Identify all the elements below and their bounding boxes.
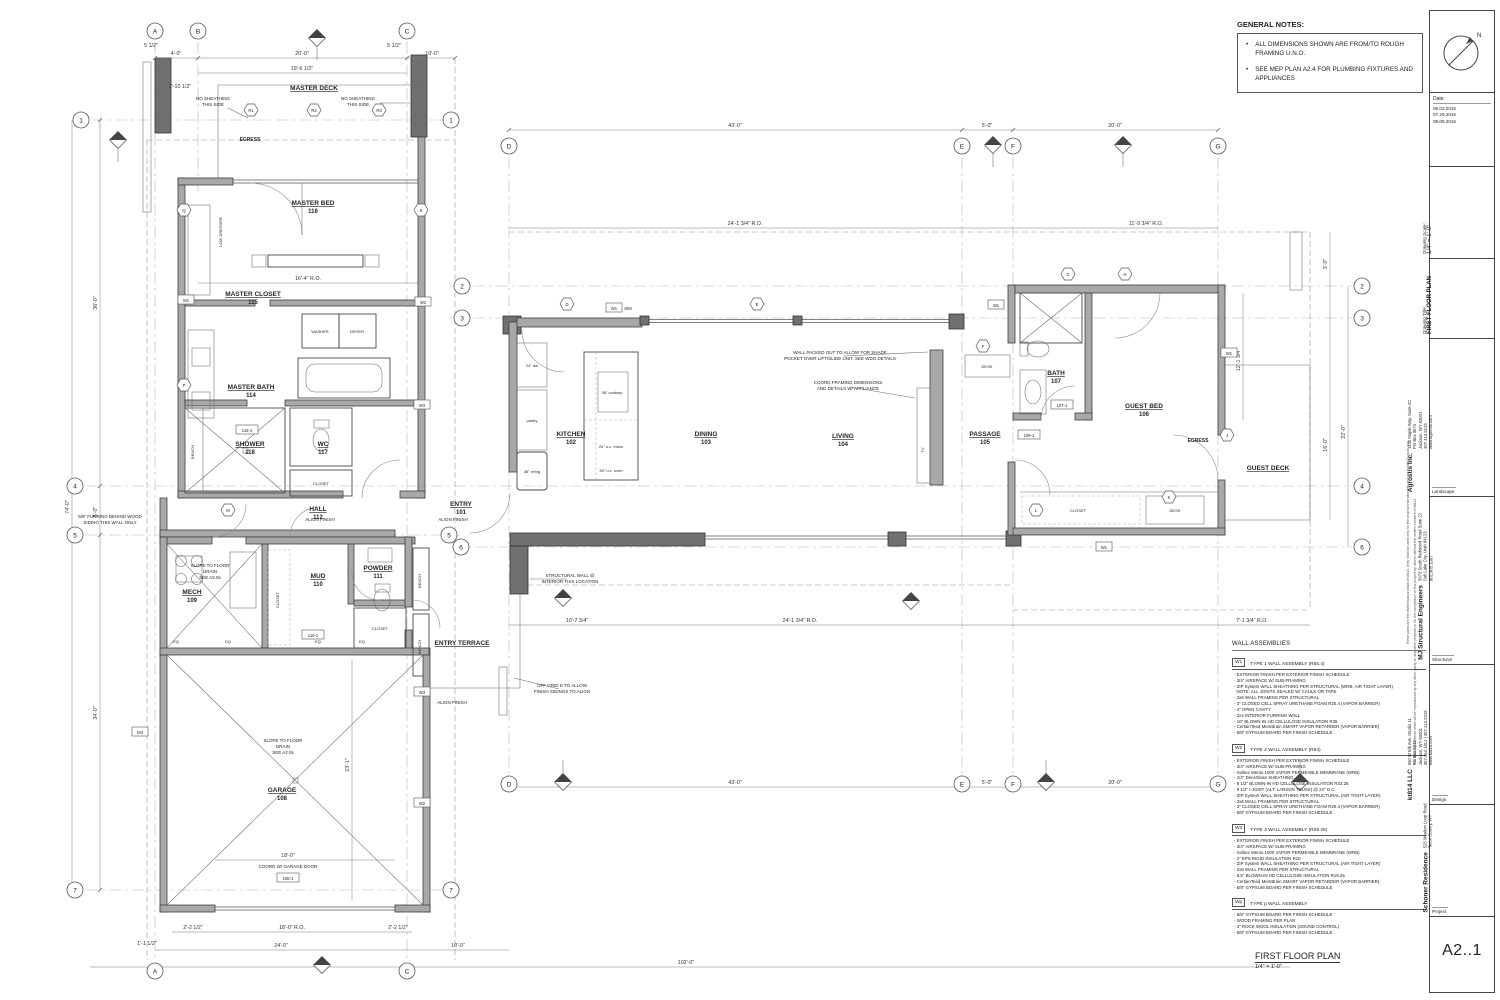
- wall-assembly-title: TYPE p WALL ASSEMBLY: [1250, 902, 1307, 907]
- room-label-kitchen: KITCHEN: [557, 431, 586, 438]
- wall-tag: W1: [611, 306, 618, 311]
- room-num: 102: [566, 440, 577, 446]
- grid-bubble-4: 4: [73, 483, 77, 490]
- grid-bubble-C: C: [405, 968, 410, 975]
- firm-role: Structural: [1432, 655, 1454, 662]
- guest-fixtures: [1020, 293, 1204, 524]
- room-label-mech: MECH: [182, 589, 201, 596]
- grid-bubbles-letters: A B C D E F G A C D E F G: [147, 23, 1226, 979]
- hex-D: D: [565, 302, 568, 307]
- dim-label: 22'-0": [1341, 425, 1347, 439]
- dim-label: 2'-2 1/2": [388, 925, 408, 931]
- firm-section-design: kt814 LLC 650 W Elk Ave, Studio 11PO Box…: [1430, 665, 1494, 805]
- hex-F: F: [982, 344, 985, 349]
- scale-section: Drawing Scale: 1/4" = 1'-0": [1430, 167, 1494, 259]
- title-block: N Date: 06.02.201507.29.201509.09.2015 D…: [1429, 10, 1495, 993]
- master-fixtures: [185, 205, 390, 496]
- room-label-master-bed: MASTER BED: [292, 200, 335, 207]
- dim-label: 34'-0": [93, 706, 99, 720]
- grid-bubble-1: 1: [79, 117, 83, 124]
- room-num: 118: [245, 450, 255, 456]
- note-slope-drain: SEE A2.0s: [272, 750, 294, 755]
- bench-label: BENCH: [417, 574, 422, 588]
- dw-label: 24" dw: [526, 363, 538, 368]
- grid-lines: [86, 42, 1352, 958]
- note-structural-wall: STRUCTURAL WALL @: [545, 573, 595, 578]
- note-slope-drain: SEE A2.0s: [199, 575, 221, 580]
- wall-tag: W1: [993, 303, 1000, 308]
- dim-label: 43'-0": [728, 123, 742, 129]
- wall-assembly-line: 5/8" GYPSUM BOARD PER FINISH SCHEDULE: [1234, 885, 1426, 891]
- wall-assemblies-list: W1 TYPE 1 WALL ASSEMBLY (R55.4) EXTERIOR…: [1232, 658, 1426, 936]
- wall-assembly-title: TYPE 3 WALL ASSEMBLY (R29.25): [1250, 828, 1327, 833]
- plan-title: FIRST FLOOR PLAN 1/4" = 1'-0": [1255, 951, 1340, 970]
- general-note-item: SEE MEP PLAN A2.4 FOR PLUMBING FIXTURES …: [1242, 66, 1416, 83]
- grid-bubble-5: 5: [73, 532, 77, 539]
- note-coord-framing: COORD FRAMING DIMENSIONS: [814, 380, 883, 385]
- room-label-bath: BATH: [1047, 370, 1065, 377]
- dim-label: 18'-0": [281, 853, 295, 859]
- closet-label: CLOSET: [313, 481, 330, 486]
- note-shade-pocket: WALL PACKED OUT TO ALLOW FOR SHADE: [793, 350, 887, 355]
- note-furring: 5/8" FURRING BEHIND WOOD: [78, 514, 142, 519]
- note-slope-drain: DRAIN: [203, 569, 217, 574]
- pantry-label: pantry: [526, 418, 537, 423]
- firm-section-structural: MJ Structural Engineers 5673 South Redwo…: [1430, 497, 1494, 665]
- dim-label: 1'-1 1/2": [137, 941, 157, 947]
- dim-label: 102'-0": [678, 960, 695, 966]
- note-no-sheathing: NO SHEATHING: [341, 96, 375, 101]
- note-align-finish: ALIGN FINISH: [437, 700, 467, 705]
- drawing-title-section: Drawing Title: FIRST FLOOR PLAN: [1430, 259, 1494, 339]
- dim-label: 24'-0": [274, 943, 288, 949]
- eq-label: EQ: [225, 639, 231, 644]
- dim-label: 36'-0": [93, 296, 99, 310]
- wall-assembly: W3 TYPE 3 WALL ASSEMBLY (R29.25) EXTERIO…: [1232, 824, 1426, 890]
- closet-label: CLOSET: [372, 626, 389, 631]
- hex-G: G: [1066, 272, 1069, 277]
- wall-assembly-line: 5/8" GYPSUM BOARD PER FINISH SCHEDULE: [1234, 810, 1426, 816]
- dim-label: 16'-0": [1323, 438, 1329, 452]
- general-notes-heading: GENERAL NOTES:: [1237, 20, 1423, 29]
- cooktop-label: 36" cooktop: [602, 390, 624, 395]
- firm-name: kt814 LLC: [1407, 769, 1414, 800]
- grid-bubble-3: 3: [460, 315, 464, 322]
- note-off-grid: FINISH SIDINGS TO ALIGN: [534, 689, 590, 694]
- wall-assembly-lines: EXTERIOR FINISH PER EXTERIOR FINISH SCHE…: [1234, 672, 1426, 736]
- wall-assembly-lines: EXTERIOR FINISH PER EXTERIOR FINISH SCHE…: [1234, 758, 1426, 816]
- wall-tag: W1: [183, 298, 190, 303]
- room-label-master-deck: MASTER DECK: [290, 85, 338, 92]
- room-label-powder: POWDER: [363, 565, 393, 572]
- room-label-master-bath: MASTER BATH: [228, 384, 275, 391]
- grid-bubble-3: 3: [1360, 315, 1364, 322]
- wall-tag: W2: [419, 801, 426, 806]
- dimension-lines: [72, 56, 1348, 967]
- room-num: 101: [456, 510, 467, 516]
- room-label-hall: HALL: [309, 506, 326, 513]
- room-label-guest-deck: GUEST DECK: [1247, 465, 1290, 472]
- grid-bubble-6: 6: [1360, 544, 1364, 551]
- date-list: 06.02.201507.29.201509.09.2015: [1433, 106, 1491, 125]
- wall-assembly-title-row: Wp TYPE p WALL ASSEMBLY: [1232, 898, 1426, 910]
- wall-assembly-line: 5/8" GYPSUM BOARD PER FINISH SCHEDULE: [1234, 930, 1426, 936]
- dim-label: 5'-0": [982, 123, 993, 129]
- wall-assembly-title-row: W1 TYPE 1 WALL ASSEMBLY (R55.4): [1232, 658, 1426, 670]
- note-align-finish: ALIGN FINISH: [305, 517, 335, 522]
- refrig-label: 36" refrig: [524, 469, 540, 474]
- room-num: 103: [701, 440, 712, 446]
- grid-bubble-C: C: [405, 28, 410, 35]
- project-name: Schoner Residence: [1423, 852, 1430, 912]
- hex-R1: R1: [248, 108, 254, 113]
- room-label-master-closet: MASTER CLOSET: [225, 291, 281, 298]
- note-slope-drain: SLOPE TO FLOOR: [190, 563, 230, 568]
- micro-label: 24" u.c. micro: [599, 444, 624, 449]
- dim-label: 18'-0" R.O.: [279, 925, 305, 931]
- oven-label: 30" u.c. oven: [599, 468, 622, 473]
- room-label-passage: PASSAGE: [969, 431, 1001, 438]
- note-align-finish: ALIGN FINISH: [438, 517, 468, 522]
- firm-role: Design: [1432, 795, 1448, 802]
- note-no-sheathing: THIS SIDE: [347, 102, 369, 107]
- wall-assembly: W2 TYPE 2 WALL ASSEMBLY (R54) EXTERIOR F…: [1232, 744, 1426, 816]
- grid-bubble-A: A: [153, 968, 158, 975]
- firm-name: MJ Structural Engineers: [1417, 585, 1424, 660]
- hex-K: K: [1168, 495, 1171, 500]
- door-tag: 108-1: [283, 876, 294, 881]
- desk-label: DESK: [982, 364, 993, 369]
- general-notes-box: ALL DIMENSIONS SHOWN ARE FROM/TO ROUGH F…: [1237, 33, 1423, 93]
- svg-text:N: N: [1477, 33, 1481, 39]
- hex-J: J: [1226, 433, 1228, 438]
- dim-label: 23'-1": [345, 758, 351, 772]
- note-slope-drain: DRAIN: [276, 744, 290, 749]
- room-num: 116: [308, 209, 318, 215]
- note-furring: SIDING THIS WALL ONLY: [83, 520, 136, 525]
- drawing-sheet: 4'-0" 20'-0" 10'-0" 19'-6 1/2" 2'-10 1/2…: [0, 0, 1500, 1000]
- eq-label: EQ: [359, 639, 365, 644]
- firm-section-landscape: Agrostis Inc. 1130 Maple Way, Suite 2CPO…: [1430, 339, 1494, 497]
- room-label-mud: MUD: [311, 573, 326, 580]
- room-num: 115: [248, 300, 258, 306]
- door-tag: 110-1: [308, 633, 319, 638]
- dim-label: 20'-0": [1108, 780, 1122, 786]
- room-num: 106: [1139, 412, 1150, 418]
- dryer-label: DRYER: [350, 329, 364, 334]
- hex-R2: R2: [311, 108, 317, 113]
- firm-name: Agrostis Inc.: [1407, 453, 1414, 492]
- egress-label: EGRESS: [240, 137, 262, 143]
- grid-bubble-B: B: [196, 28, 200, 35]
- north-arrow-icon: N: [1430, 11, 1492, 91]
- bench-label: BENCH: [417, 640, 422, 654]
- eq-label: EQ: [315, 639, 321, 644]
- hex-M: M: [226, 508, 230, 513]
- room-num: 114: [246, 393, 256, 399]
- wall-assembly-lines: EXTERIOR FINISH PER EXTERIOR FINISH SCHE…: [1234, 838, 1426, 890]
- dim-label: 20'-0": [295, 51, 309, 57]
- grid-bubble-7: 7: [73, 887, 77, 894]
- bench-label: BENCH: [190, 445, 195, 459]
- firm-role: Landscape: [1432, 487, 1456, 494]
- grid-bubble-F: F: [1011, 781, 1015, 788]
- dim-label: 10'-0": [451, 943, 465, 949]
- egress-label: EGRESS: [1188, 438, 1210, 444]
- door-tag: 106-1: [1024, 433, 1035, 438]
- wall-assembly-title: TYPE 2 WALL ASSEMBLY (R54): [1250, 748, 1320, 753]
- dim-label: 24'-1 3/4" R.O.: [783, 618, 818, 624]
- grid-bubble-E: E: [960, 781, 965, 788]
- annotations: NO SHEATHING THIS SIDE NO SHEATHING THIS…: [78, 96, 928, 869]
- room-label-guest-bed: GUEST BED: [1125, 403, 1163, 410]
- drawing-title-value: FIRST FLOOR PLAN: [1427, 276, 1433, 334]
- room-num: 108: [277, 796, 288, 802]
- dim-label: 7'-1 3/4" R.O.: [1236, 618, 1268, 624]
- grid-bubble-1: 1: [449, 117, 453, 124]
- hex-S: S: [420, 208, 423, 213]
- dim-label: 5'-0": [982, 780, 993, 786]
- wall-tag: W3: [419, 403, 426, 408]
- wall-tag: W1: [1101, 545, 1108, 550]
- date-section: Date: 06.02.201507.29.201509.09.2015: [1430, 93, 1494, 167]
- general-notes-panel: GENERAL NOTES: ALL DIMENSIONS SHOWN ARE …: [1237, 20, 1423, 93]
- wall-assembly: W1 TYPE 1 WALL ASSEMBLY (R55.4) EXTERIOR…: [1232, 658, 1426, 736]
- room-label-living: LIVING: [832, 433, 854, 440]
- room-num: 111: [373, 574, 383, 580]
- grid-bubble-G: G: [1215, 143, 1220, 150]
- dim-label: 2'-10 1/2": [169, 84, 191, 90]
- grid-bubbles-numbers: 1 4 5 7 1 2 3 5 6 7 2 3 4 6: [67, 112, 1370, 898]
- room-label-entry-terrace: ENTRY TERRACE: [435, 640, 491, 647]
- room-label-wc: WC: [318, 441, 329, 448]
- wall-tag-sim: SIM: [624, 306, 632, 311]
- north-arrow-section: N: [1430, 11, 1494, 93]
- room-num: 117: [318, 450, 328, 456]
- wall-assembly: Wp TYPE p WALL ASSEMBLY 5/8" GYPSUM BOAR…: [1232, 898, 1426, 935]
- grid-bubble-2: 2: [460, 283, 464, 290]
- dim-label: 20'-0": [1108, 123, 1122, 129]
- sheet-number: A2..1: [1442, 942, 1482, 960]
- walls-center: [503, 314, 1021, 546]
- hex-E: E: [756, 302, 759, 307]
- note-slope-drain: SLOPE TO FLOOR: [263, 738, 303, 743]
- date-label: Date:: [1433, 96, 1491, 104]
- room-num: 109: [187, 598, 198, 604]
- general-note-item: ALL DIMENSIONS SHOWN ARE FROM/TO ROUGH F…: [1242, 41, 1416, 58]
- project-section: Schoner Residence 525 Moulton Loop RoadT…: [1430, 805, 1494, 917]
- hex-R3: R3: [376, 108, 382, 113]
- grid-bubble-6: 6: [459, 544, 463, 551]
- plan-title-text: FIRST FLOOR PLAN: [1255, 951, 1340, 963]
- grid-bubble-7: 7: [449, 887, 453, 894]
- grid-bubble-D: D: [507, 781, 512, 788]
- room-label-entry: ENTRY: [450, 501, 472, 508]
- dim-label: 11'-9 3/4" R.O.: [1129, 221, 1163, 227]
- room-num: 105: [980, 440, 991, 446]
- wall-tag: W2: [420, 300, 427, 305]
- project-role: Project: [1432, 907, 1448, 914]
- dim-label: 10'-7 3/4": [566, 618, 588, 624]
- note-shade-pocket: POCKET OVER LIFT/SLIDE UNIT. SEE WDO DET…: [784, 356, 896, 361]
- room-labels: MASTER DECK MASTER BED 116 MASTER CLOSET…: [182, 85, 1289, 802]
- dim-label: 3'-0": [1323, 259, 1329, 270]
- wall-assembly-lines: 5/8" GYPSUM BOARD PER FINISH SCHEDULEWOO…: [1234, 912, 1426, 935]
- wall-tag: W1: [1226, 351, 1233, 356]
- date-item: 09.09.2015: [1433, 119, 1491, 125]
- door-tag: 107-1: [1057, 403, 1068, 408]
- firm-address-line: www.kt814.com: [1428, 710, 1433, 765]
- firm-address-line: 801.905.1097: [1428, 513, 1433, 581]
- wall-assembly-title: TYPE 1 WALL ASSEMBLY (R55.4): [1250, 662, 1324, 667]
- room-num: 110: [313, 582, 323, 588]
- room-label-garage: GARAGE: [268, 787, 297, 794]
- room-num: 104: [838, 442, 849, 448]
- note-coord-garage: COORD W/ GARAGE DOOR: [259, 864, 319, 869]
- grid-bubble-A: A: [153, 28, 158, 35]
- room-label-shower: SHOWER: [235, 441, 265, 448]
- note-structural-wall: INTERIOR THIS LOCATION: [542, 579, 599, 584]
- wall-assembly-tag: W1: [1232, 658, 1245, 667]
- grid-bubble-E: E: [960, 143, 965, 150]
- wall-assembly-title-row: W3 TYPE 3 WALL ASSEMBLY (R29.25): [1232, 824, 1426, 836]
- hex-H: H: [1123, 272, 1126, 277]
- dimension-labels: 4'-0" 20'-0" 10'-0" 19'-6 1/2" 2'-10 1/2…: [65, 43, 1347, 966]
- grid-bubble-2: 2: [1360, 283, 1364, 290]
- grid-bubble-F: F: [1011, 143, 1015, 150]
- dim-label: 4'-0": [171, 51, 182, 57]
- door-tag: 116-1: [242, 428, 253, 433]
- grid-bubble-4: 4: [1360, 483, 1364, 490]
- wall-assembly-line: 5/8" GYPSUM BOARD PER FINISH SCHEDULE: [1234, 730, 1426, 736]
- dim-label: 2'-2 1/2": [183, 925, 203, 931]
- hex-bubbles: R1 R2 R3 Q S P M D E F G H J K L: [177, 104, 1234, 516]
- note-no-sheathing: THIS SIDE: [202, 102, 224, 107]
- eq-label: EQ: [173, 639, 179, 644]
- dim-label: 24'-1 3/4" R.O.: [728, 221, 763, 227]
- wall-assemblies-panel: WALL ASSEMBLIES W1 TYPE 1 WALL ASSEMBLY …: [1232, 641, 1426, 944]
- wall-assembly-tag: W3: [1232, 824, 1245, 833]
- sheet-number-section: A2..1: [1430, 917, 1494, 984]
- wall-tag: W3: [137, 730, 144, 735]
- section-markers: [110, 30, 1309, 974]
- room-label-dining: DINING: [695, 431, 718, 438]
- wall-assembly-title-row: W2 TYPE 2 WALL ASSEMBLY (R54): [1232, 744, 1426, 756]
- closet-label: CLOSET: [275, 591, 280, 608]
- project-address-line: Teton County, WY: [1428, 803, 1433, 848]
- firm-address-line: www.agrostis.com: [1428, 400, 1433, 449]
- grid-bubble-G: G: [1215, 781, 1220, 788]
- dim-label: 16'-4" R.O.: [295, 276, 321, 282]
- dim-label: 19'-6 1/2": [291, 66, 313, 72]
- scale-value: 1/4" = 1'-0": [1427, 219, 1433, 254]
- washer-label: WASHER: [311, 329, 329, 334]
- wall-assembly-tag: Wp: [1232, 898, 1245, 907]
- grid-bubble-D: D: [507, 143, 512, 150]
- dim-label: 5 1/2": [144, 43, 158, 49]
- note-no-sheathing: NO SHEATHING: [196, 96, 230, 101]
- room-num: 107: [1051, 379, 1062, 385]
- dim-label: 43'-0": [728, 780, 742, 786]
- wall-assembly-tag: W2: [1232, 744, 1245, 753]
- dim-label: 10'-0": [425, 51, 439, 57]
- tv-label: TV: [920, 447, 925, 452]
- plan-title-scale: 1/4" = 1'-0": [1255, 963, 1340, 970]
- grid-bubble-5: 5: [447, 532, 451, 539]
- dim-label: 5 1/2": [387, 43, 401, 49]
- wall-tag: W3: [419, 690, 426, 695]
- low-dresser-label: LOW DRESSER: [218, 217, 223, 247]
- hex-P: P: [183, 383, 186, 388]
- dim-label: 74'-0": [65, 500, 71, 514]
- closet-label: CLOSET: [1070, 508, 1087, 513]
- wall-assemblies-heading: WALL ASSEMBLIES: [1232, 641, 1426, 651]
- desk-label: DESK: [1170, 508, 1181, 513]
